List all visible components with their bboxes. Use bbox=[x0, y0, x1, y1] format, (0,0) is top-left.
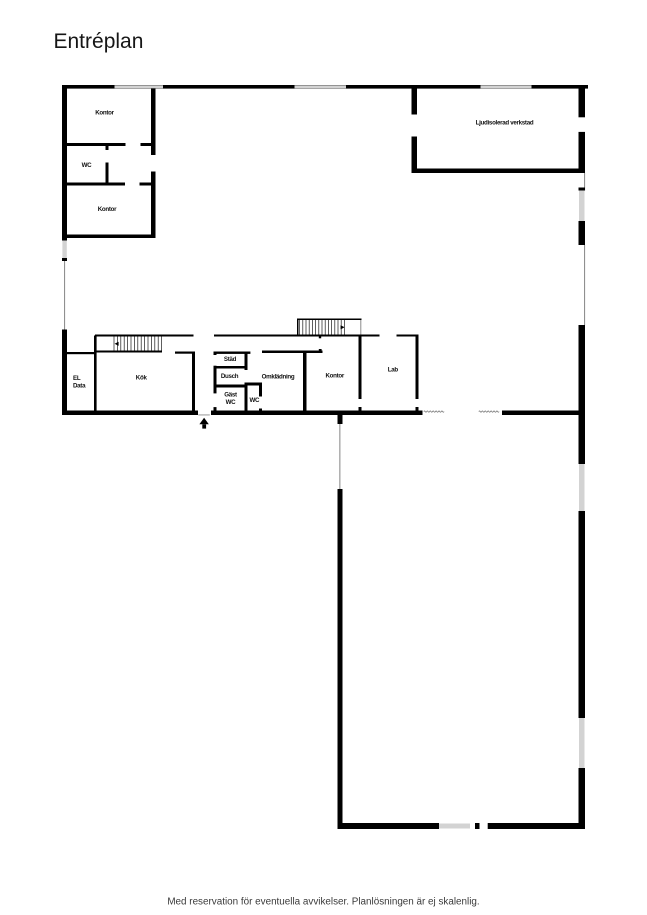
svg-text:Kontor: Kontor bbox=[95, 109, 114, 116]
svg-text:WC: WC bbox=[249, 397, 260, 404]
svg-text:Entréplan: Entréplan bbox=[54, 30, 144, 53]
svg-text:Data: Data bbox=[73, 383, 86, 390]
svg-text:Gäst: Gäst bbox=[224, 392, 237, 399]
svg-text:Omklädning: Omklädning bbox=[262, 373, 295, 380]
svg-text:EL: EL bbox=[73, 375, 81, 382]
svg-text:Dusch: Dusch bbox=[221, 373, 239, 380]
svg-text:Ljudisolerad verkstad: Ljudisolerad verkstad bbox=[476, 119, 534, 126]
svg-text:Kontor: Kontor bbox=[98, 206, 117, 213]
svg-text:WC: WC bbox=[82, 162, 93, 169]
svg-text:Städ: Städ bbox=[224, 356, 237, 363]
svg-text:WC: WC bbox=[226, 399, 237, 406]
svg-text:Med reservation för eventuella: Med reservation för eventuella avvikelse… bbox=[167, 897, 479, 908]
svg-text:Kök: Kök bbox=[136, 375, 148, 382]
svg-text:Lab: Lab bbox=[388, 367, 399, 374]
svg-text:Kontor: Kontor bbox=[325, 373, 344, 380]
